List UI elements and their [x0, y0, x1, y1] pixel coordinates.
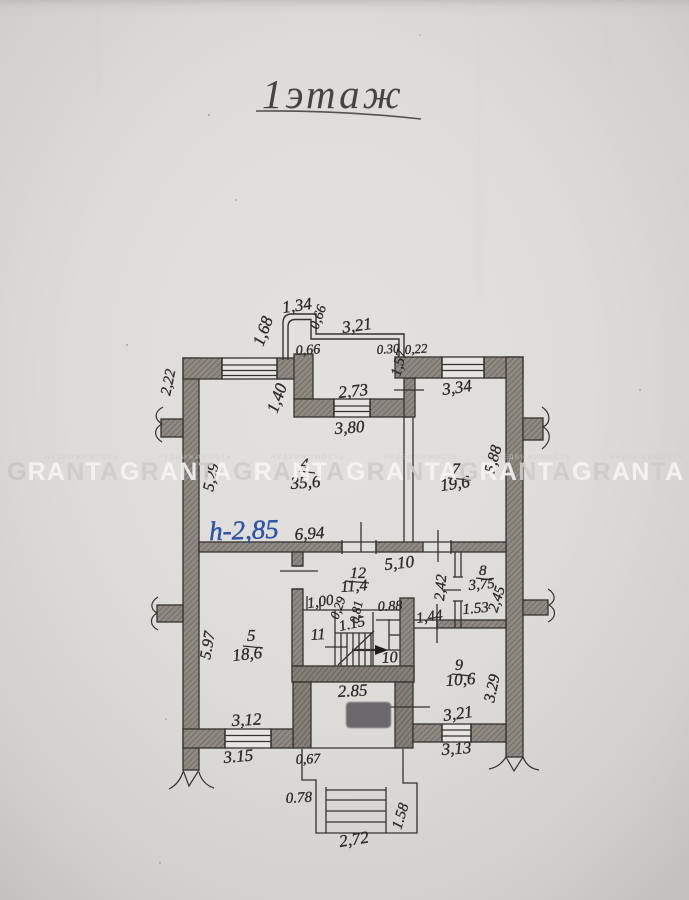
svg-text:НЕДВИЖИМОСТЬ: НЕДВИЖИМОСТЬ [610, 454, 684, 461]
svg-text:5: 5 [247, 626, 256, 645]
svg-text:3,13: 3,13 [440, 738, 472, 759]
svg-text:GRANTA: GRANTA [233, 458, 345, 486]
svg-text:НЕДВИЖИМОСТЬ: НЕДВИЖИМОСТЬ [158, 454, 232, 461]
svg-text:0.78: 0.78 [285, 790, 313, 807]
svg-text:11: 11 [310, 626, 326, 644]
svg-text:3,80: 3,80 [333, 417, 365, 438]
svg-text:GRANTA: GRANTA [346, 458, 458, 486]
svg-text:10,6: 10,6 [445, 669, 477, 690]
svg-text:0.88: 0.88 [377, 599, 402, 615]
svg-text:НЕДВИЖИМОСТЬ: НЕДВИЖИМОСТЬ [384, 454, 458, 461]
svg-text:GRANTA: GRANTA [459, 458, 571, 486]
svg-text:1.53: 1.53 [462, 600, 490, 618]
svg-text:2,73: 2,73 [337, 380, 369, 402]
svg-text:2.85: 2.85 [337, 680, 368, 701]
svg-text:0,67: 0,67 [295, 752, 321, 768]
svg-text:НЕДВИЖИМОСТЬ: НЕДВИЖИМОСТЬ [271, 454, 345, 461]
svg-text:6,94: 6,94 [294, 523, 326, 544]
svg-text:GRANTA: GRANTA [572, 458, 684, 486]
svg-text:0,66: 0,66 [295, 342, 320, 359]
svg-text:10: 10 [381, 649, 398, 667]
svg-text:GRANTA: GRANTA [7, 458, 119, 486]
svg-text:НЕДВИЖИМОСТЬ: НЕДВИЖИМОСТЬ [45, 454, 119, 461]
svg-text:НЕДВИЖИМОСТЬ: НЕДВИЖИМОСТЬ [497, 454, 571, 461]
svg-text:1этаж: 1этаж [262, 71, 404, 117]
svg-text:3.15: 3.15 [222, 745, 254, 767]
svg-text:3,12: 3,12 [230, 709, 262, 730]
svg-text:h-2,85: h-2,85 [208, 514, 279, 546]
svg-text:2,42: 2,42 [432, 573, 450, 601]
svg-text:11,4: 11,4 [340, 577, 368, 596]
svg-text:5,10: 5,10 [383, 552, 415, 574]
svg-text:18,6: 18,6 [231, 643, 263, 665]
svg-text:GRANTA: GRANTA [120, 458, 232, 486]
